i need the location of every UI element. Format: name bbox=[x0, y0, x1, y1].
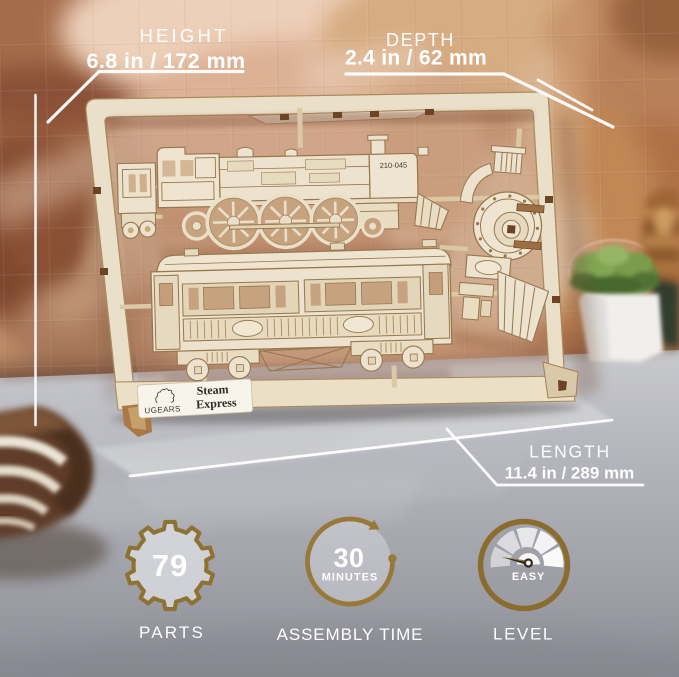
svg-text:2.4 in / 62 mm: 2.4 in / 62 mm bbox=[345, 47, 487, 70]
svg-text:79: 79 bbox=[152, 548, 188, 583]
svg-text:Express: Express bbox=[196, 395, 238, 411]
svg-text:11.4 in / 289 mm: 11.4 in / 289 mm bbox=[505, 464, 634, 483]
svg-text:6.8 in / 172 mm: 6.8 in / 172 mm bbox=[87, 49, 246, 73]
svg-text:210-045: 210-045 bbox=[380, 161, 408, 171]
svg-text:30: 30 bbox=[333, 543, 364, 573]
svg-text:HEIGHT: HEIGHT bbox=[139, 25, 228, 46]
svg-text:LENGTH: LENGTH bbox=[529, 442, 611, 462]
svg-text:MINUTES: MINUTES bbox=[322, 572, 379, 584]
svg-text:LEVEL: LEVEL bbox=[493, 625, 554, 644]
svg-text:ASSEMBLY TIME: ASSEMBLY TIME bbox=[277, 625, 424, 644]
svg-text:EASY: EASY bbox=[512, 571, 545, 583]
svg-text:PARTS: PARTS bbox=[139, 623, 205, 642]
